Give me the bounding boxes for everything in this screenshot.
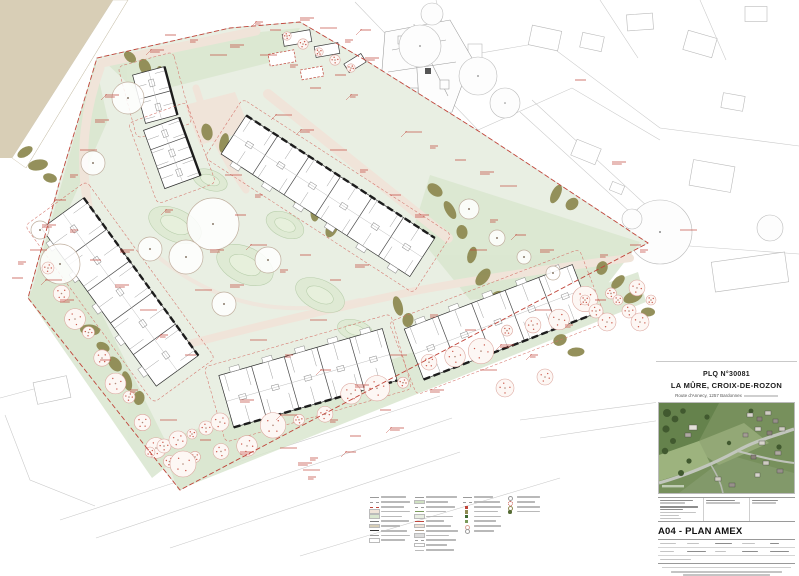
legend-microtext <box>426 539 456 541</box>
legend-symbol-icon <box>463 529 472 532</box>
drawing-title: A04 - PLAN AMEX <box>658 526 795 537</box>
legend-symbol-icon <box>370 515 379 518</box>
legend-column <box>415 496 458 562</box>
legend-entry <box>506 510 540 513</box>
legend-entry <box>370 496 410 499</box>
legend-microtext <box>474 525 501 527</box>
legend-microtext <box>426 511 446 513</box>
legend-entry <box>463 515 501 518</box>
legend-entry <box>506 501 540 504</box>
stakeholder-grid <box>658 497 795 522</box>
legend-symbol-icon <box>415 525 424 528</box>
legend-microtext <box>381 539 405 541</box>
legend-entry <box>415 529 458 532</box>
legend-symbol-icon <box>463 496 472 499</box>
project-number: PLQ N°30081 <box>656 371 797 378</box>
legend-microtext <box>426 520 444 522</box>
legend-entry <box>463 501 501 504</box>
legend-symbol-icon <box>506 506 515 509</box>
legend-symbol-icon <box>370 496 379 499</box>
legend-microtext <box>517 501 535 503</box>
legend-symbol-icon <box>415 544 424 547</box>
address-microtext <box>744 395 778 397</box>
legend-symbol-icon <box>506 501 515 504</box>
aerial-photo <box>658 402 795 494</box>
legend-microtext <box>426 535 449 537</box>
legend-entry <box>415 534 458 537</box>
legend-microtext <box>381 520 409 522</box>
legend-symbol-icon <box>370 501 379 504</box>
legend-symbol-icon <box>370 534 379 537</box>
grid-col-engineer <box>750 498 795 521</box>
legend-symbol-icon <box>415 496 424 499</box>
legend-entry <box>415 506 458 509</box>
legend-microtext <box>381 535 410 537</box>
legend-microtext <box>381 525 400 527</box>
legend-entry <box>370 515 410 518</box>
legend-microtext <box>426 525 451 527</box>
legend-column <box>463 496 501 562</box>
legend-entry <box>463 529 501 532</box>
legend-symbol-icon <box>506 496 515 499</box>
legend-microtext <box>474 530 494 532</box>
legend-microtext <box>474 516 501 518</box>
legend-microtext <box>517 496 540 498</box>
legend-entry <box>463 510 501 513</box>
legend-symbol-icon <box>415 534 424 537</box>
legend-microtext <box>381 506 404 508</box>
title-block: PLQ N°30081 LA MÛRE, CROIX-DE-ROZON Rout… <box>656 361 797 560</box>
project-header: PLQ N°30081 LA MÛRE, CROIX-DE-ROZON Rout… <box>656 362 797 398</box>
legend-entry <box>415 510 458 513</box>
legend-symbol-icon <box>415 529 424 532</box>
legend-microtext <box>426 496 457 498</box>
legend-symbol-icon <box>415 501 424 504</box>
legend-symbol-icon <box>415 520 424 523</box>
legend-entry <box>463 496 501 499</box>
legend-microtext <box>517 506 540 508</box>
legend-symbol-icon <box>463 501 472 504</box>
legend-microtext <box>474 501 500 503</box>
legend-entry <box>370 510 410 513</box>
legend-microtext <box>474 506 501 508</box>
legend-microtext <box>381 530 407 532</box>
legend-symbol-icon <box>370 525 379 528</box>
legend-symbol-icon <box>415 506 424 509</box>
legend-microtext <box>381 496 406 498</box>
legend-entry <box>370 506 410 509</box>
footnote <box>662 567 791 576</box>
grid-col-architect <box>704 498 750 521</box>
drawing-sheet: PLQ N°30081 LA MÛRE, CROIX-DE-ROZON Rout… <box>0 0 799 565</box>
legend-entry <box>463 525 501 528</box>
legend-column <box>506 496 540 562</box>
legend-microtext <box>426 516 453 518</box>
plan-legend <box>370 496 540 562</box>
legend-microtext <box>426 501 448 503</box>
legend-symbol-icon <box>463 506 472 509</box>
legend-symbol-icon <box>463 510 472 513</box>
grid-col-client <box>658 498 704 521</box>
legend-entry <box>370 529 410 532</box>
legend-microtext <box>474 511 498 513</box>
legend-symbol-icon <box>415 549 424 552</box>
legend-entry <box>370 534 410 537</box>
legend-entry <box>506 506 540 509</box>
legend-symbol-icon <box>463 525 472 528</box>
legend-entry <box>415 544 458 547</box>
legend-entry <box>370 520 410 523</box>
drawing-info-table <box>658 539 795 564</box>
legend-entry <box>415 520 458 523</box>
legend-symbol-icon <box>415 510 424 513</box>
legend-entry <box>370 539 410 542</box>
legend-symbol-icon <box>370 506 379 509</box>
legend-symbol-icon <box>463 515 472 518</box>
legend-entry <box>415 501 458 504</box>
legend-symbol-icon <box>415 515 424 518</box>
legend-entry <box>415 539 458 542</box>
photo-watermark <box>662 485 684 487</box>
legend-entry <box>415 496 458 499</box>
legend-microtext <box>474 520 496 522</box>
legend-microtext <box>474 496 493 498</box>
legend-symbol-icon <box>415 539 424 542</box>
legend-symbol-icon <box>506 510 515 513</box>
project-name: LA MÛRE, CROIX-DE-ROZON <box>656 381 797 390</box>
legend-microtext <box>426 549 454 551</box>
legend-symbol-icon <box>370 529 379 532</box>
legend-entry <box>463 520 501 523</box>
project-address: Route d'Annecy, 1257 Bardonnex <box>656 393 797 398</box>
legend-microtext <box>381 501 410 503</box>
legend-symbol-icon <box>370 510 379 513</box>
legend-symbol-icon <box>370 520 379 523</box>
legend-symbol-icon <box>463 520 472 523</box>
legend-entry <box>415 515 458 518</box>
legend-microtext <box>381 516 402 518</box>
legend-entry <box>415 525 458 528</box>
legend-microtext <box>426 530 458 532</box>
legend-microtext <box>426 544 447 546</box>
legend-entry <box>463 506 501 509</box>
legend-entry <box>506 496 540 499</box>
legend-column <box>370 496 410 562</box>
legend-microtext <box>426 506 455 508</box>
legend-symbol-icon <box>370 539 379 542</box>
legend-entry <box>370 525 410 528</box>
legend-microtext <box>517 511 540 513</box>
legend-entry <box>370 501 410 504</box>
legend-entry <box>415 549 458 552</box>
legend-microtext <box>381 511 410 513</box>
